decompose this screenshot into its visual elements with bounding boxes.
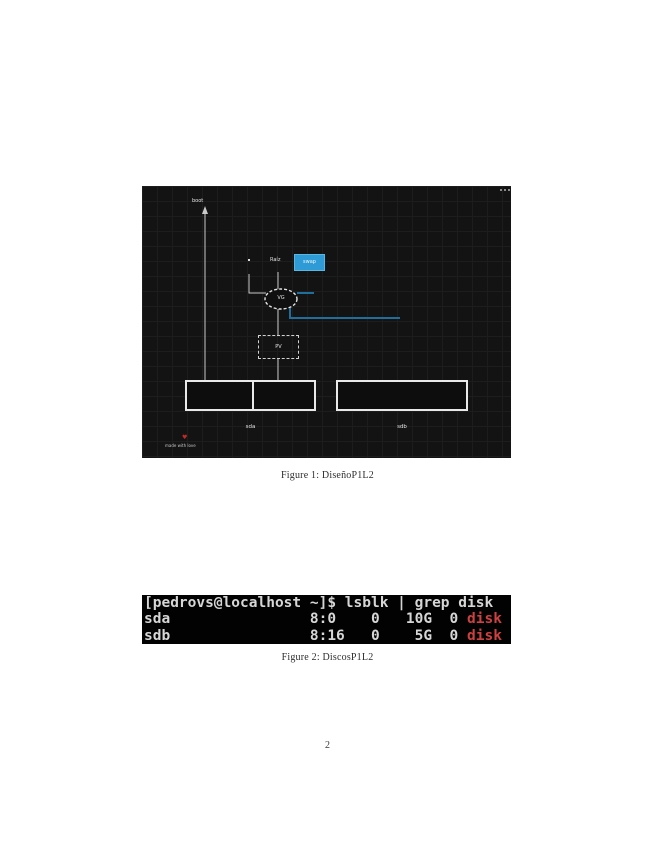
connector-left-to-vg [249,274,266,293]
lv-name-label: Raíz [270,258,280,263]
terminal-row-sdb: sdb 8:16 0 5G 0 disk [144,628,511,644]
terminal-row-sda: sda 8:0 0 10G 0 disk [144,611,511,627]
terminal-screenshot: [pedrovs@localhost ~]$ lsblk | grep disk… [142,595,511,644]
heart-icon: ♥ [182,435,187,441]
disk-sda [185,380,316,411]
boot-arrow-head [202,206,208,214]
watermark-text: made with love [165,444,196,448]
page-number: 2 [0,740,655,751]
terminal-row-sda-text: sda 8:0 0 10G 0 [144,611,467,627]
lv-box-label: swap [303,260,316,265]
figure1-diagram-canvas: boot Raíz swap VG PV sda sdb ♥ made with… [142,186,511,458]
terminal-prompt-line: [pedrovs@localhost ~]$ lsblk | grep disk [144,595,511,611]
disk-label-sdb: sdb [336,424,468,430]
terminal-row-sda-highlight: disk [467,611,502,627]
canvas-corner-dots [500,189,502,191]
boot-label: boot [192,199,203,204]
terminal-row-sdb-highlight: disk [467,628,502,644]
pv-box: PV [258,335,299,359]
terminal-row-sdb-text: sdb 8:16 0 5G 0 [144,628,467,644]
document-page: boot Raíz swap VG PV sda sdb ♥ made with… [0,0,655,848]
dot-marker [248,259,250,261]
diagram-shapes [142,186,511,458]
figure2-caption: Figure 2: DiscosP1L2 [0,652,655,663]
disk-sda-partition-divider [252,382,254,409]
pv-label: PV [275,345,281,350]
disk-label-sda: sda [185,424,316,430]
vg-label: VG [273,296,289,301]
figure1-caption: Figure 1: DiseñoP1L2 [0,470,655,481]
disk-sdb [336,380,468,411]
blue-connector-long [290,308,400,318]
lv-box: swap [294,254,325,271]
